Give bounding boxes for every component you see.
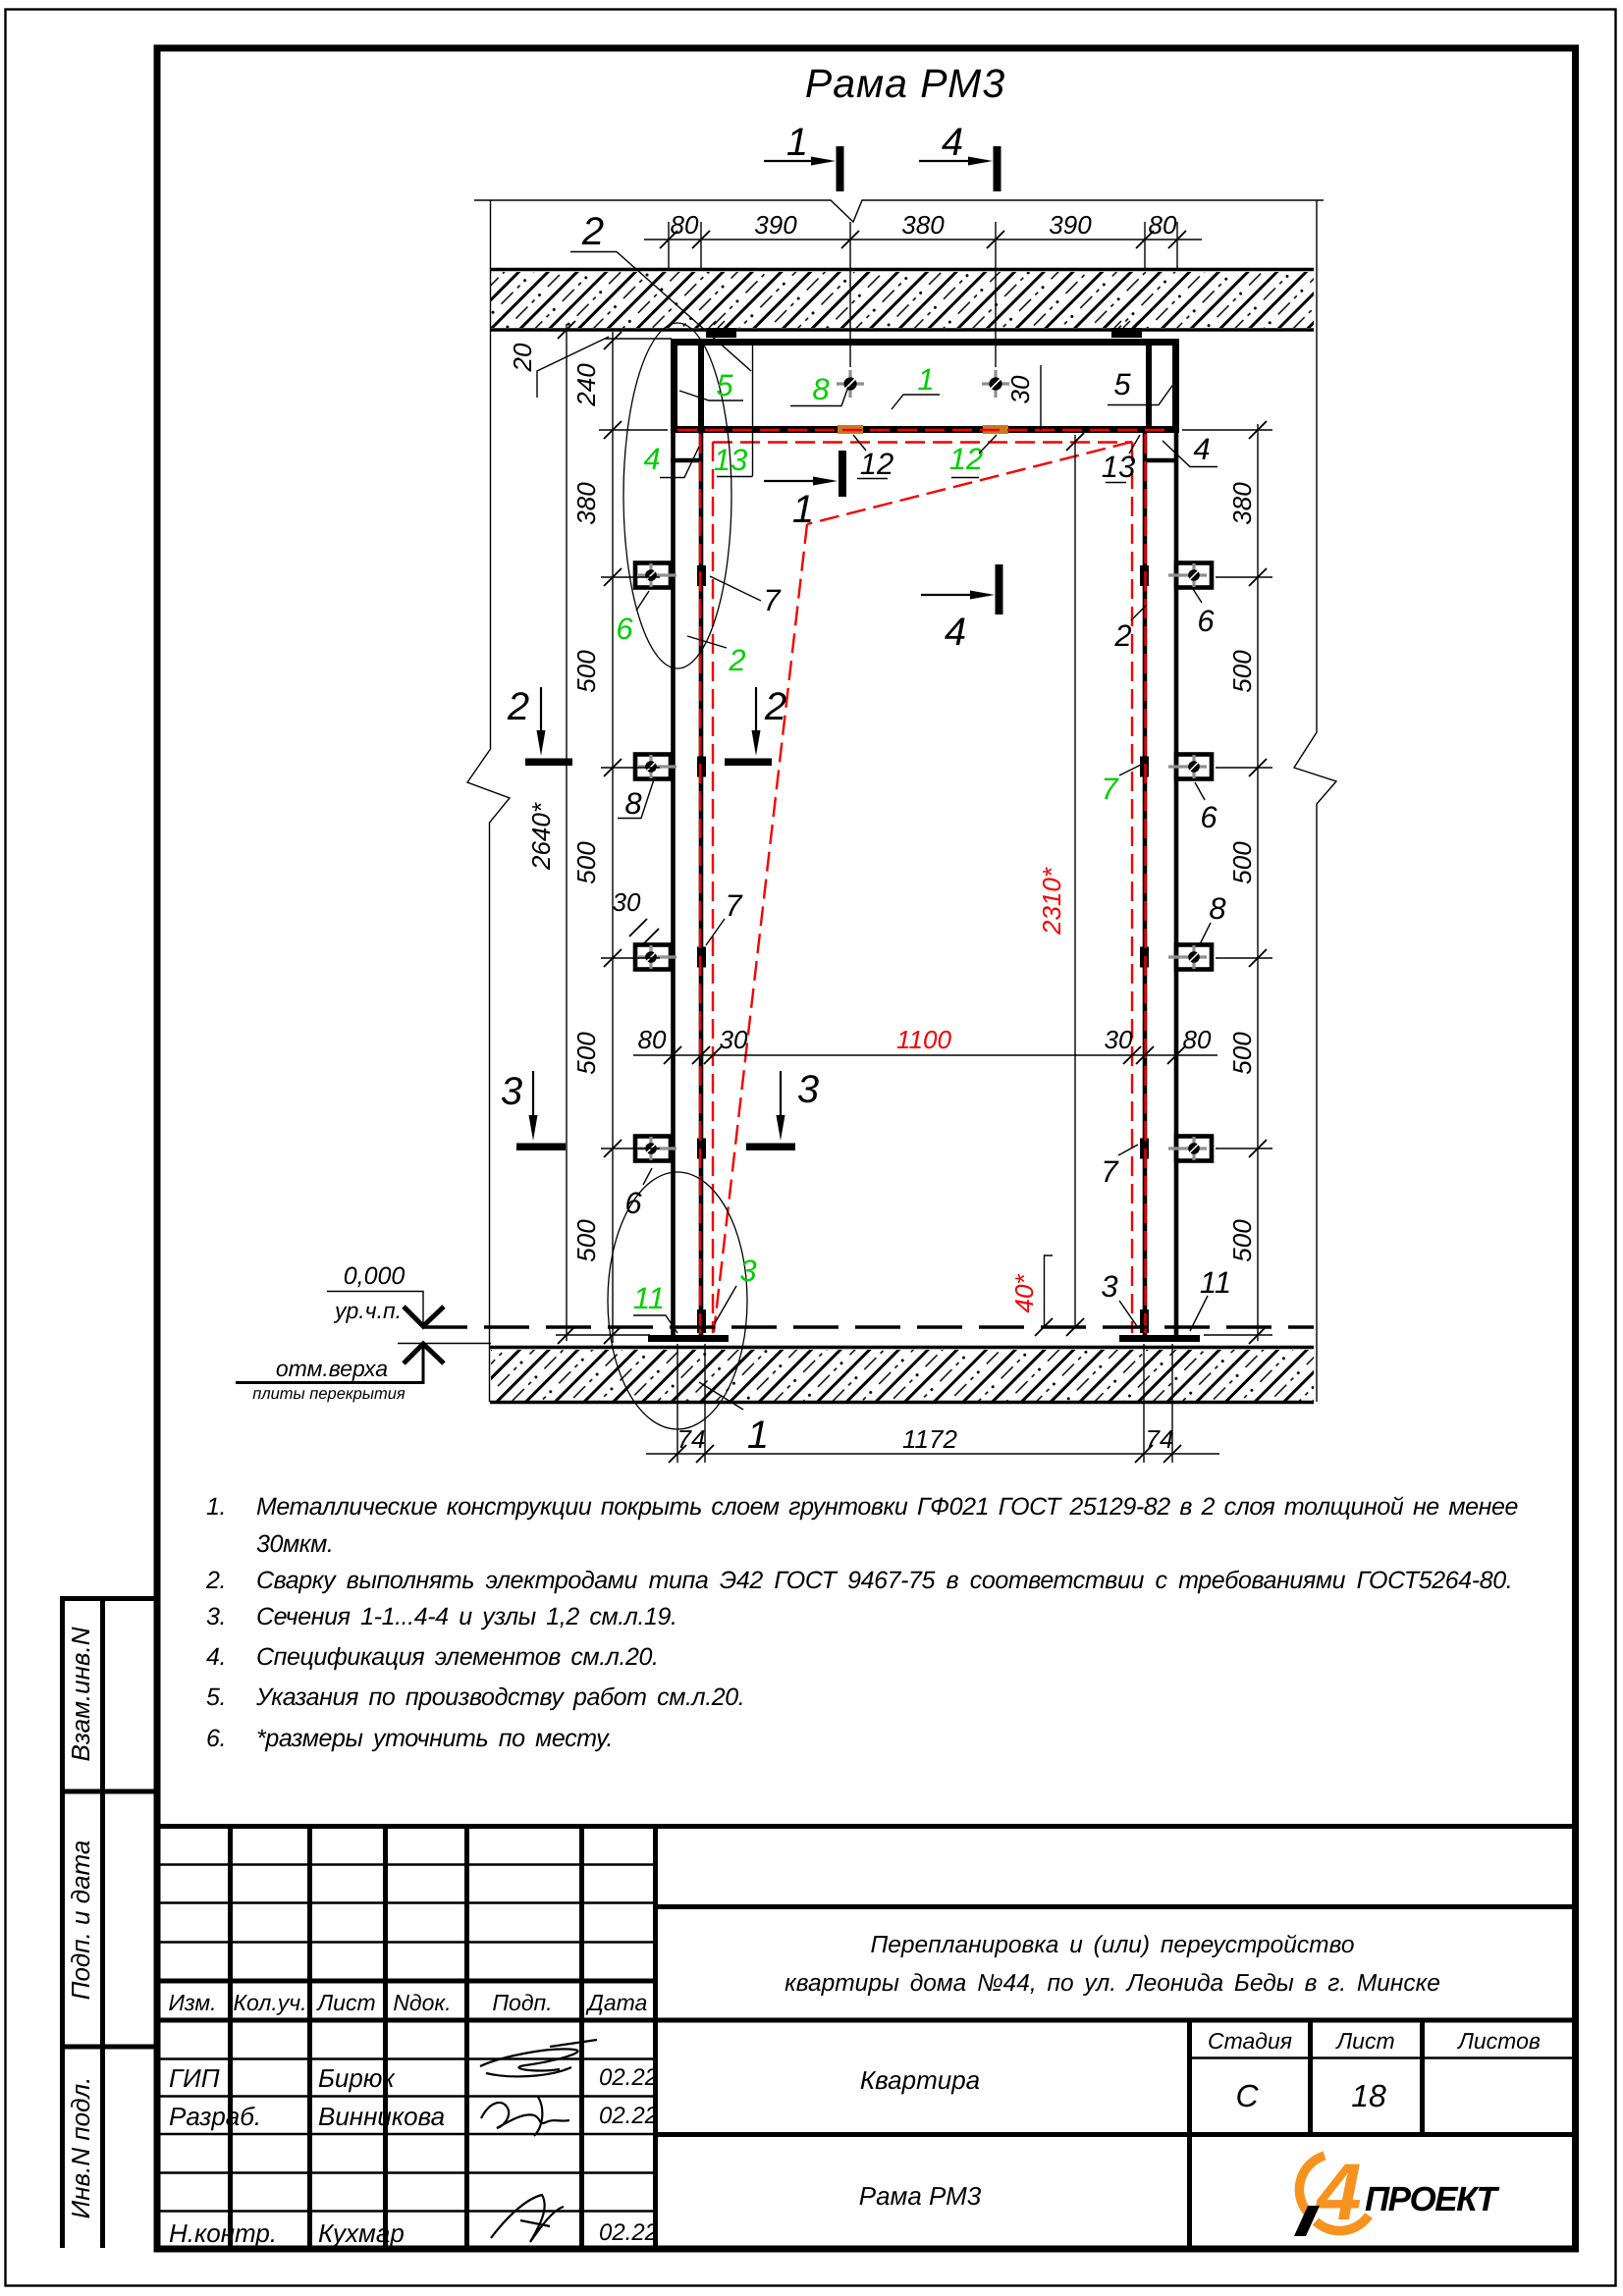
- svg-text:плиты перекрытия: плиты перекрытия: [252, 1385, 406, 1403]
- svg-text:80: 80: [1183, 1025, 1212, 1054]
- svg-text:Взам.инв.N: Взам.инв.N: [66, 1627, 95, 1761]
- svg-text:80: 80: [671, 210, 699, 240]
- svg-text:30: 30: [1005, 375, 1035, 403]
- svg-text:5: 5: [716, 368, 733, 402]
- svg-text:Листов: Листов: [1456, 2028, 1541, 2054]
- svg-text:500: 500: [571, 1032, 601, 1075]
- svg-text:Nдок.: Nдок.: [393, 1990, 451, 2015]
- svg-text:1: 1: [917, 362, 934, 397]
- svg-text:4: 4: [942, 121, 963, 164]
- svg-text:Кол.уч.: Кол.уч.: [234, 1990, 307, 2015]
- svg-text:4: 4: [1193, 432, 1210, 466]
- svg-text:2.: 2.: [205, 1567, 226, 1594]
- svg-text:4: 4: [945, 611, 966, 654]
- svg-text:Сварку выполнять электродами т: Сварку выполнять электродами типа Э42 ГО…: [256, 1567, 1512, 1594]
- svg-text:Лист: Лист: [315, 1990, 375, 2015]
- svg-text:380: 380: [571, 482, 601, 525]
- svg-text:Сечения 1-1...4-4 и узлы 1,2 с: Сечения 1-1...4-4 и узлы 1,2 см.л.19.: [256, 1603, 677, 1630]
- svg-text:11: 11: [633, 1281, 665, 1315]
- svg-text:Указания по производству работ: Указания по производству работ см.л.20.: [255, 1683, 744, 1711]
- svg-text:13: 13: [1102, 450, 1135, 484]
- svg-text:Металлические конструкции покр: Металлические конструкции покрыть слоем …: [256, 1493, 1518, 1521]
- svg-text:500: 500: [1227, 650, 1257, 693]
- svg-text:Подп. и дата: Подп. и дата: [66, 1841, 95, 2001]
- svg-text:Лист: Лист: [1334, 2028, 1394, 2054]
- svg-text:Бирюк: Бирюк: [318, 2063, 396, 2093]
- svg-text:3.: 3.: [206, 1603, 226, 1630]
- svg-text:20: 20: [508, 343, 537, 372]
- svg-text:С: С: [1235, 2078, 1259, 2113]
- svg-text:Разраб.: Разраб.: [169, 2102, 261, 2131]
- svg-text:4: 4: [643, 442, 660, 476]
- svg-text:2310*: 2310*: [1037, 867, 1066, 935]
- svg-text:3: 3: [1101, 1269, 1117, 1304]
- svg-text:Кухмар: Кухмар: [318, 2218, 405, 2248]
- svg-text:3: 3: [501, 1070, 522, 1113]
- svg-text:7: 7: [1101, 1154, 1119, 1189]
- svg-text:3: 3: [797, 1068, 819, 1111]
- svg-text:8: 8: [624, 786, 642, 821]
- svg-text:02.22: 02.22: [599, 2219, 658, 2246]
- svg-text:11: 11: [1200, 1265, 1231, 1300]
- svg-text:Стадия: Стадия: [1208, 2028, 1292, 2054]
- svg-text:ПРОЕКТ: ПРОЕКТ: [1365, 2180, 1500, 2218]
- svg-text:5: 5: [1113, 367, 1131, 401]
- svg-text:380: 380: [901, 210, 945, 240]
- svg-text:30: 30: [613, 887, 641, 917]
- svg-text:02.22: 02.22: [599, 2103, 658, 2129]
- svg-text:ур.ч.п.: ур.ч.п.: [333, 1298, 402, 1323]
- svg-text:2: 2: [728, 643, 745, 677]
- svg-text:8: 8: [812, 372, 830, 406]
- svg-text:80: 80: [1149, 210, 1177, 240]
- svg-text:500: 500: [1227, 1032, 1257, 1075]
- svg-text:500: 500: [571, 841, 601, 884]
- svg-text:380: 380: [1227, 482, 1257, 525]
- svg-text:12: 12: [860, 447, 893, 481]
- svg-text:7: 7: [1101, 772, 1119, 806]
- svg-text:квартиры дома №44, по ул. Леон: квартиры дома №44, по ул. Леонида Беды в…: [784, 1970, 1440, 1997]
- svg-text:Спецификация элементов см.л.20: Спецификация элементов см.л.20.: [256, 1643, 659, 1671]
- svg-text:6: 6: [1200, 800, 1217, 834]
- svg-text:Изм.: Изм.: [168, 1990, 216, 2015]
- svg-text:5.: 5.: [206, 1683, 226, 1711]
- svg-text:500: 500: [1227, 841, 1257, 884]
- svg-text:Н.контр.: Н.контр.: [169, 2218, 277, 2248]
- svg-text:7: 7: [763, 583, 782, 617]
- svg-text:30мкм.: 30мкм.: [256, 1530, 333, 1558]
- svg-text:Подп.: Подп.: [492, 1990, 552, 2015]
- svg-text:1.: 1.: [206, 1493, 226, 1521]
- svg-text:7: 7: [725, 888, 743, 923]
- svg-text:2: 2: [581, 210, 604, 253]
- svg-text:74: 74: [1146, 1424, 1174, 1454]
- svg-text:500: 500: [571, 650, 601, 693]
- svg-text:500: 500: [571, 1219, 601, 1262]
- svg-text:8: 8: [1209, 891, 1226, 926]
- svg-text:13: 13: [714, 443, 747, 477]
- svg-text:6: 6: [616, 612, 633, 646]
- svg-text:*размеры уточнить по месту.: *размеры уточнить по месту.: [256, 1725, 613, 1752]
- svg-text:12: 12: [949, 442, 983, 476]
- svg-text:Рама РМ3: Рама РМ3: [859, 2181, 982, 2211]
- svg-text:4.: 4.: [206, 1643, 226, 1671]
- svg-text:18: 18: [1351, 2078, 1386, 2113]
- svg-text:240: 240: [571, 363, 601, 407]
- svg-text:Инв.N подл.: Инв.N подл.: [66, 2077, 95, 2219]
- svg-text:6: 6: [624, 1186, 642, 1220]
- svg-text:390: 390: [1049, 210, 1092, 240]
- svg-text:Квартира: Квартира: [860, 2065, 980, 2095]
- svg-text:1172: 1172: [902, 1424, 957, 1454]
- svg-text:500: 500: [1227, 1219, 1257, 1262]
- svg-text:Перепланировка и (или) переуст: Перепланировка и (или) переустройство: [871, 1932, 1355, 1958]
- svg-text:2: 2: [507, 685, 529, 728]
- svg-text:4: 4: [1315, 2148, 1362, 2237]
- svg-text:1100: 1100: [896, 1025, 951, 1054]
- svg-text:30: 30: [720, 1025, 748, 1054]
- svg-text:2: 2: [764, 685, 786, 728]
- svg-text:6: 6: [1197, 604, 1215, 638]
- svg-text:1: 1: [747, 1414, 769, 1457]
- svg-text:Дата: Дата: [585, 1990, 648, 2015]
- svg-text:0,000: 0,000: [344, 1262, 406, 1290]
- svg-text:390: 390: [754, 210, 797, 240]
- svg-text:отм.верха: отм.верха: [276, 1356, 388, 1381]
- svg-text:40*: 40*: [1009, 1274, 1039, 1313]
- svg-text:1: 1: [792, 488, 814, 531]
- svg-text:80: 80: [638, 1025, 667, 1054]
- svg-text:ГИП: ГИП: [169, 2063, 220, 2093]
- svg-text:Рама РМ3: Рама РМ3: [805, 61, 1005, 106]
- svg-text:2640*: 2640*: [526, 802, 556, 871]
- svg-text:Винникова: Винникова: [318, 2102, 445, 2131]
- svg-text:3: 3: [739, 1254, 756, 1288]
- svg-text:6.: 6.: [206, 1725, 226, 1752]
- svg-text:30: 30: [1105, 1025, 1133, 1054]
- svg-text:02.22: 02.22: [599, 2064, 658, 2091]
- svg-text:1: 1: [786, 121, 808, 164]
- svg-text:2: 2: [1113, 618, 1131, 653]
